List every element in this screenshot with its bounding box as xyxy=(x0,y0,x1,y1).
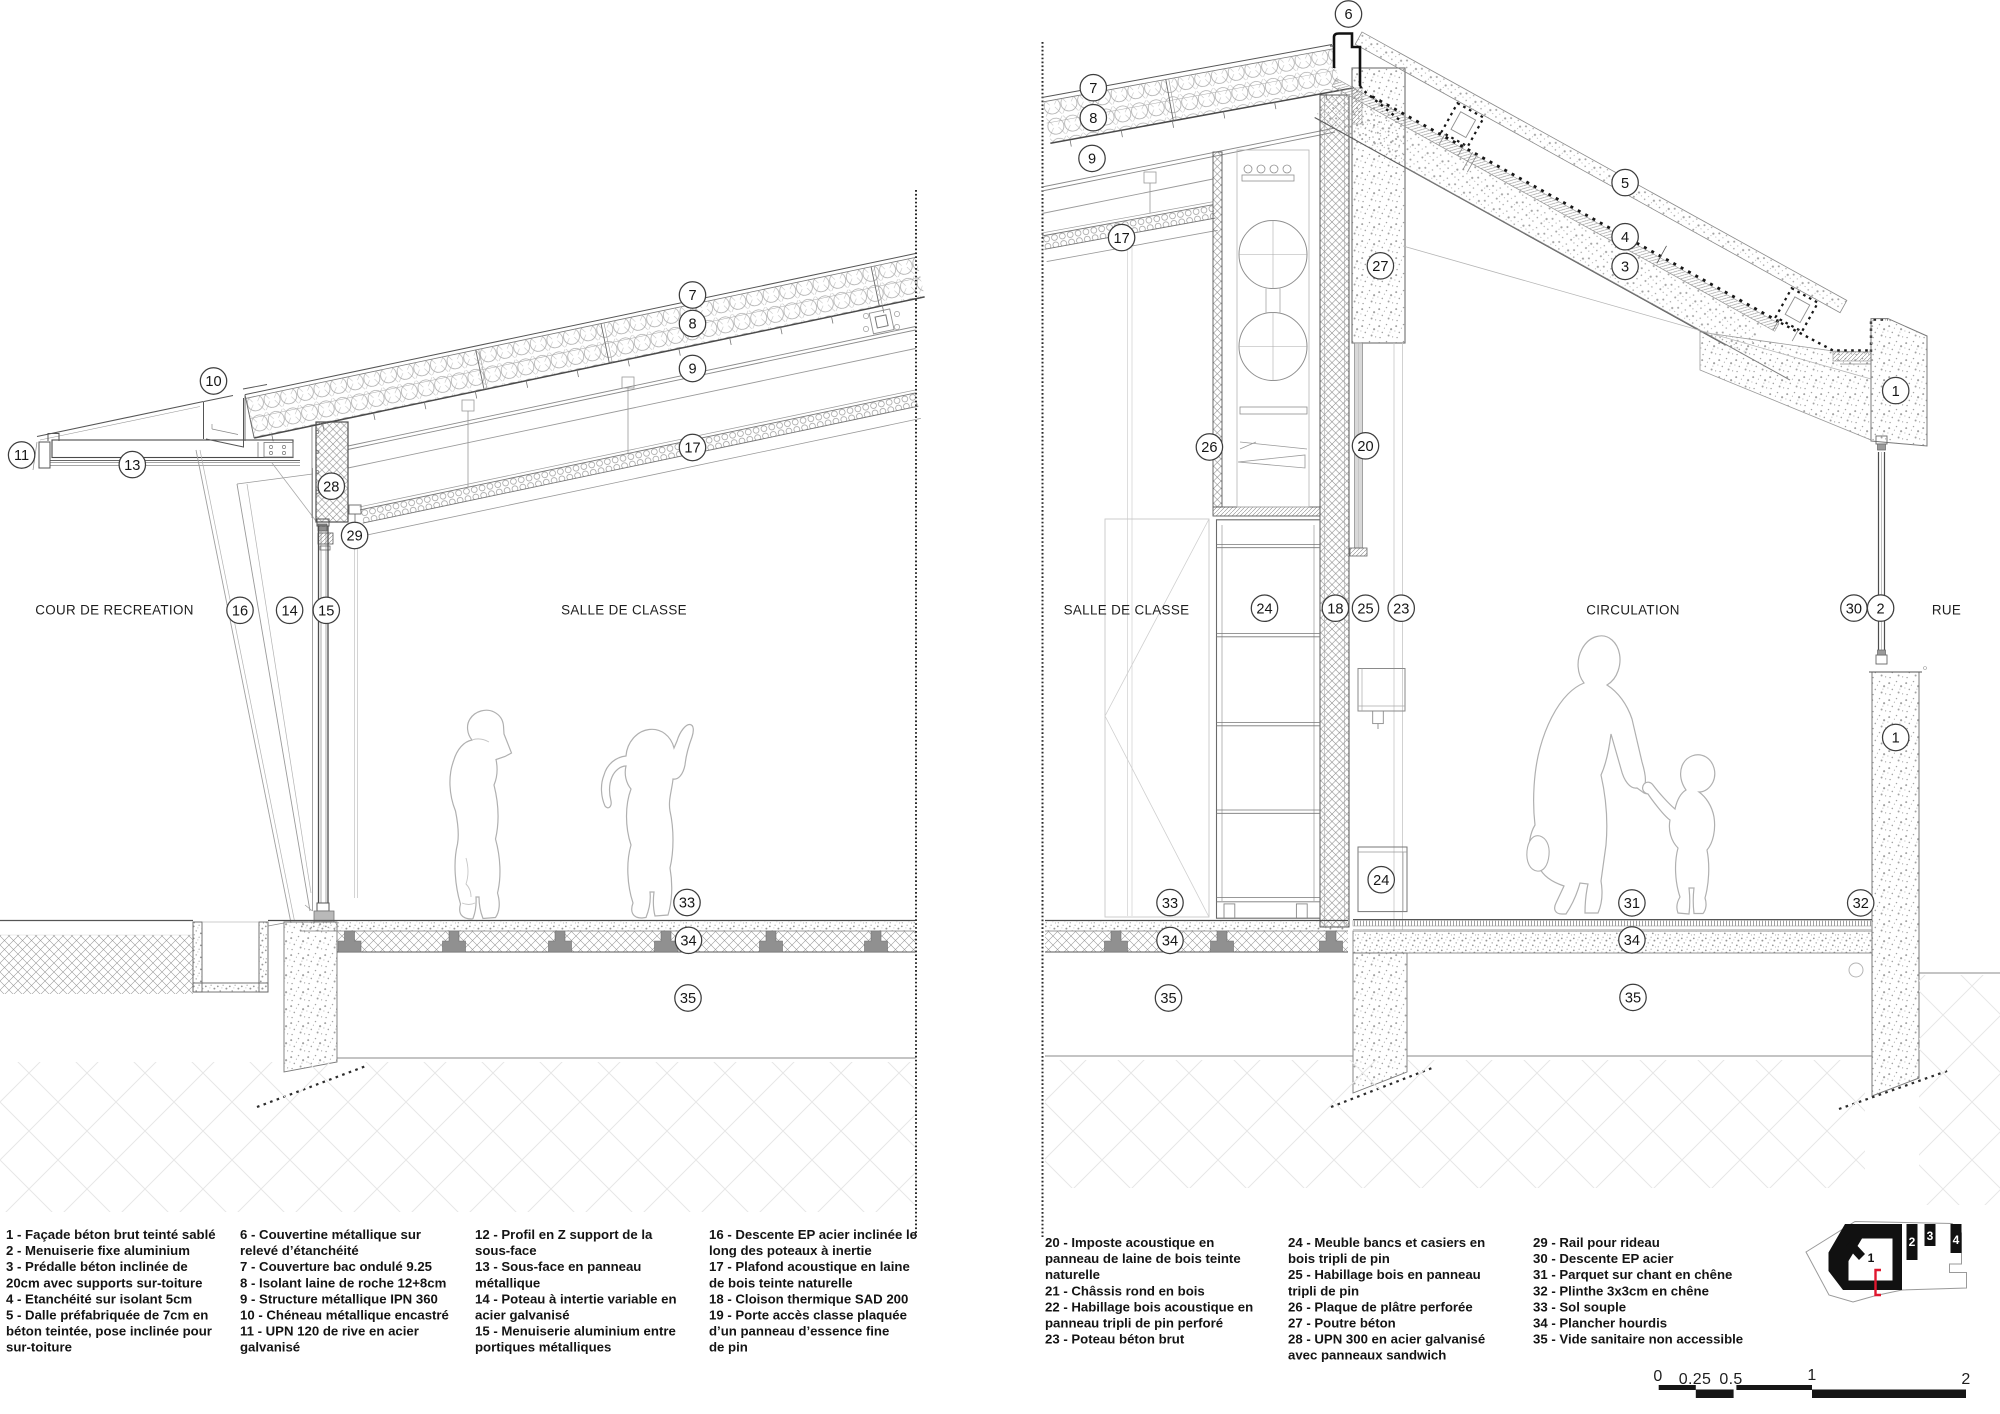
svg-text:1: 1 xyxy=(1868,1251,1875,1265)
svg-text:7: 7 xyxy=(688,288,696,304)
svg-text:9: 9 xyxy=(1088,152,1096,168)
svg-text:34: 34 xyxy=(1162,934,1178,950)
svg-text:8: 8 xyxy=(688,317,696,333)
svg-text:0.25: 0.25 xyxy=(1679,1371,1712,1388)
svg-text:34: 34 xyxy=(680,934,696,950)
svg-text:20: 20 xyxy=(1357,439,1373,455)
svg-text:0: 0 xyxy=(1653,1368,1662,1385)
svg-text:31: 31 xyxy=(1624,896,1640,912)
svg-text:33: 33 xyxy=(679,896,695,912)
svg-text:27: 27 xyxy=(1372,259,1388,275)
svg-text:1 - Façade béton brut teinté s: 1 - Façade béton brut teinté sablé2 - Me… xyxy=(6,1227,216,1355)
svg-text:COUR DE RECREATION: COUR DE RECREATION xyxy=(35,603,194,618)
svg-text:25: 25 xyxy=(1357,601,1373,617)
svg-text:0.5: 0.5 xyxy=(1719,1371,1742,1388)
svg-text:1: 1 xyxy=(1892,384,1900,400)
svg-text:13: 13 xyxy=(124,458,140,474)
svg-text:2: 2 xyxy=(1961,1371,1970,1388)
svg-text:35: 35 xyxy=(680,991,696,1007)
svg-text:15: 15 xyxy=(318,604,334,620)
svg-text:2: 2 xyxy=(1909,1235,1916,1249)
svg-text:1: 1 xyxy=(1807,1367,1816,1384)
svg-text:6: 6 xyxy=(1344,7,1352,23)
svg-text:10: 10 xyxy=(205,374,221,390)
svg-text:9: 9 xyxy=(688,362,696,378)
svg-text:17: 17 xyxy=(684,441,700,457)
svg-text:30: 30 xyxy=(1846,601,1862,617)
svg-text:4: 4 xyxy=(1953,1233,1960,1247)
svg-text:2: 2 xyxy=(1877,601,1885,617)
svg-text:5: 5 xyxy=(1621,176,1629,192)
svg-text:34: 34 xyxy=(1624,933,1640,949)
svg-text:3: 3 xyxy=(1927,1229,1934,1243)
svg-text:35: 35 xyxy=(1160,991,1176,1007)
svg-text:26: 26 xyxy=(1201,440,1217,456)
svg-text:23: 23 xyxy=(1393,601,1409,617)
svg-text:SALLE DE CLASSE: SALLE DE CLASSE xyxy=(561,603,687,618)
svg-text:14: 14 xyxy=(281,604,297,620)
svg-text:RUE: RUE xyxy=(1932,603,1961,618)
svg-text:32: 32 xyxy=(1853,896,1869,912)
svg-text:24: 24 xyxy=(1256,601,1272,617)
svg-text:1: 1 xyxy=(1892,731,1900,747)
svg-text:11: 11 xyxy=(14,448,29,464)
svg-text:28: 28 xyxy=(323,479,339,495)
svg-text:29: 29 xyxy=(346,529,362,545)
svg-text:16: 16 xyxy=(232,604,248,620)
svg-text:CIRCULATION: CIRCULATION xyxy=(1586,603,1680,618)
svg-text:18: 18 xyxy=(1327,601,1343,617)
svg-text:8: 8 xyxy=(1089,111,1097,127)
svg-text:35: 35 xyxy=(1625,991,1641,1007)
svg-text:17: 17 xyxy=(1113,231,1129,247)
svg-text:33: 33 xyxy=(1162,896,1178,912)
svg-text:3: 3 xyxy=(1621,260,1629,276)
svg-text:24: 24 xyxy=(1373,873,1389,889)
svg-text:4: 4 xyxy=(1621,230,1629,246)
svg-text:SALLE DE CLASSE: SALLE DE CLASSE xyxy=(1064,603,1190,618)
svg-text:7: 7 xyxy=(1089,81,1097,97)
